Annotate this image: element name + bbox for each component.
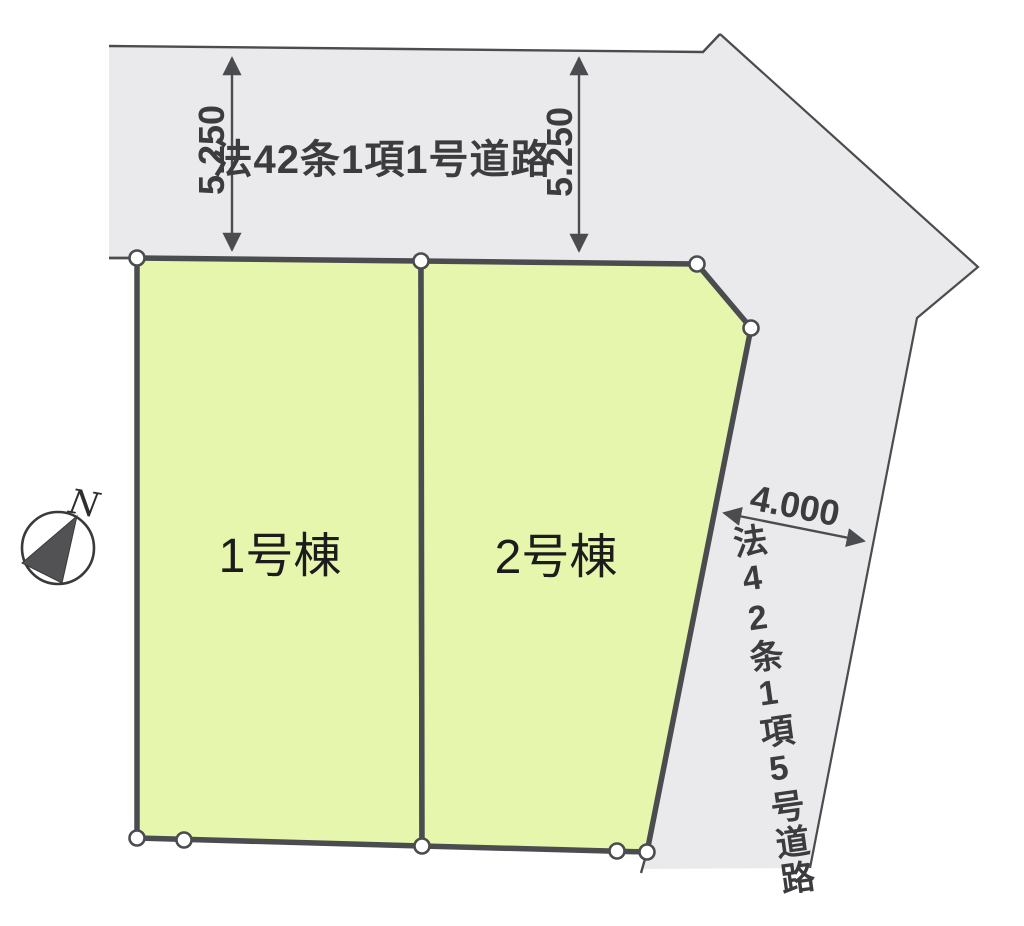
road-top-width-right: 5.250 xyxy=(540,82,580,222)
boundary-point xyxy=(610,844,625,859)
boundary-point xyxy=(414,254,429,269)
road-top-width-left: 5.250 xyxy=(192,80,232,220)
road-top-name: 法42条1項1号道路 xyxy=(182,132,582,180)
boundary-point xyxy=(130,251,145,266)
site-plan: 法42条1項1号道路 5.250 5.250 4.000 法42条1項5号道路 … xyxy=(0,0,1024,926)
boundary-point xyxy=(690,257,705,272)
north-indicator-label: N xyxy=(59,480,109,527)
boundary-point xyxy=(415,839,430,854)
boundary-point xyxy=(744,321,759,336)
lot-1-label: 1号棟 xyxy=(170,521,390,581)
boundary-point xyxy=(130,831,145,846)
boundary-point xyxy=(640,845,655,860)
boundary-point xyxy=(177,833,192,848)
lot-2-label: 2号棟 xyxy=(446,522,666,582)
